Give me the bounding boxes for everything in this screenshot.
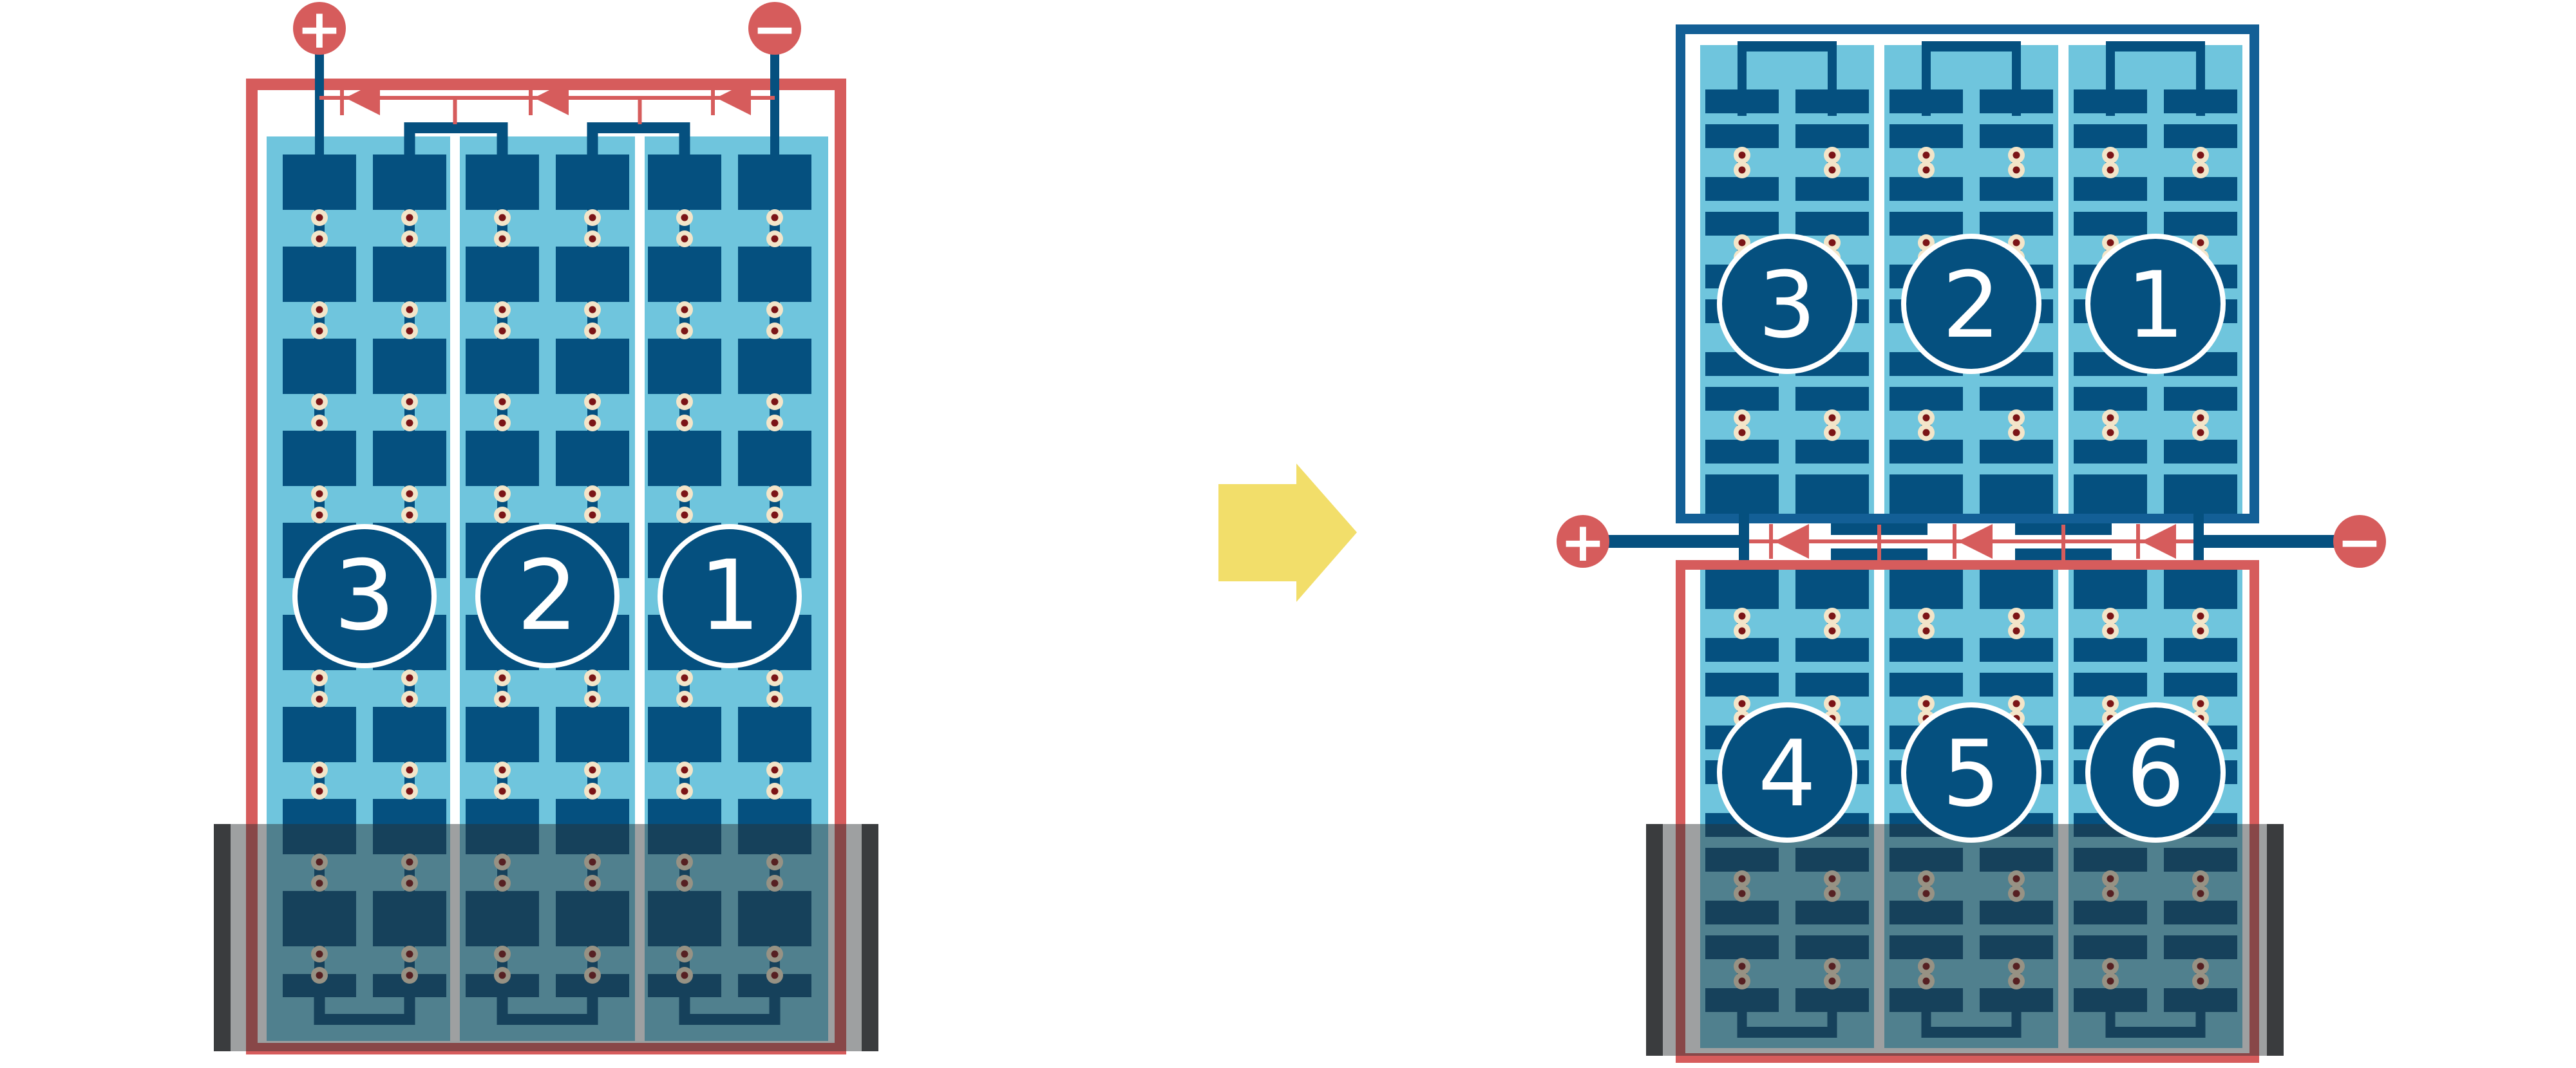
pv-cell: [2074, 440, 2147, 464]
badge-number: 1: [699, 540, 760, 652]
solder-dot-core: [1829, 628, 1836, 635]
solder-dot-core: [681, 788, 688, 795]
terminal-positive-label: +: [1560, 511, 1605, 574]
pv-cell: [1705, 673, 1779, 697]
section-number-badge: 5: [1904, 705, 2039, 840]
bridge-bar: [1922, 41, 2021, 52]
pv-cell: [466, 247, 539, 302]
pv-cell: [2164, 89, 2237, 113]
pv-cell: [1980, 212, 2053, 236]
solder-dot-core: [2013, 152, 2020, 159]
pv-cell: [2074, 474, 2147, 514]
solder-dot-core: [2107, 628, 2114, 635]
pv-cell: [1980, 387, 2053, 411]
solder-dot-core: [772, 767, 779, 774]
pv-cell: [373, 431, 446, 486]
pv-cell: [1795, 638, 1869, 662]
solder-dot-core: [589, 788, 596, 795]
solder-dot-core: [772, 696, 779, 703]
section-number-badge: 2: [478, 527, 617, 666]
solder-dot-core: [499, 214, 506, 221]
solar-module-shading-diagram: +−+−321321456: [0, 0, 2576, 1068]
solder-dot-core: [2013, 239, 2020, 247]
solder-dot-core: [499, 420, 506, 427]
pv-cell: [373, 247, 446, 302]
solder-dot-core: [1739, 700, 1746, 707]
pv-cell: [1889, 124, 1963, 148]
solder-dot-core: [2107, 700, 2114, 707]
solder-dot-core: [681, 236, 688, 243]
solder-dot-core: [1829, 613, 1836, 620]
solder-dot-core: [316, 675, 323, 682]
solder-dot-core: [1739, 239, 1746, 247]
bypass-diode-icon: [1769, 524, 1809, 559]
solder-dot-core: [772, 420, 779, 427]
terminal-wire: [770, 50, 779, 205]
solder-dot-core: [499, 328, 506, 335]
solder-dot-core: [2107, 415, 2114, 422]
solder-dot-core: [772, 398, 779, 406]
pv-cell: [1980, 638, 2053, 662]
pv-cell: [2164, 212, 2237, 236]
solder-dot-core: [2013, 700, 2020, 707]
badge-number: 3: [1758, 252, 1816, 359]
pv-cell: [2074, 638, 2147, 662]
solder-dot-core: [406, 512, 413, 519]
pv-cell: [283, 339, 356, 394]
solder-dot-core: [1923, 239, 1930, 247]
pv-cell: [1795, 89, 1869, 113]
solder-dot-core: [1923, 613, 1930, 620]
arrow-right-icon: [1218, 464, 1357, 602]
section-number-badge: 1: [660, 527, 799, 666]
solder-dot-core: [1739, 429, 1746, 436]
bus-junction: [638, 98, 642, 124]
pv-cell: [1980, 89, 2053, 113]
terminal-negative: −: [2333, 511, 2386, 574]
solder-dot-core: [772, 491, 779, 498]
solder-dot-core: [2197, 429, 2204, 436]
solder-dot-core: [681, 328, 688, 335]
pv-cell: [466, 707, 539, 762]
solder-dot-core: [2013, 415, 2020, 422]
solder-dot-core: [316, 696, 323, 703]
solder-dot-core: [499, 675, 506, 682]
solder-dot-core: [589, 236, 596, 243]
solder-dot-core: [2107, 152, 2114, 159]
solder-dot-core: [316, 236, 323, 243]
solder-dot-core: [316, 420, 323, 427]
pv-cell: [1795, 124, 1869, 148]
solder-dot-core: [681, 491, 688, 498]
solder-dot-core: [499, 696, 506, 703]
solder-dot-core: [2107, 239, 2114, 247]
pv-cell: [283, 707, 356, 762]
terminal-positive-label: +: [297, 0, 342, 61]
solder-dot-core: [1923, 415, 1930, 422]
pv-cell: [1795, 387, 1869, 411]
badge-number: 5: [1942, 721, 2000, 827]
solder-dot-core: [772, 328, 779, 335]
pv-cell: [1795, 673, 1869, 697]
pv-cell: [2074, 387, 2147, 411]
bus-junction: [1877, 525, 1881, 561]
solder-dot-core: [1923, 700, 1930, 707]
pv-cell: [466, 155, 539, 210]
solder-dot-core: [316, 328, 323, 335]
pv-cell: [738, 247, 811, 302]
pv-cell: [1889, 474, 1963, 514]
solder-dot-core: [589, 306, 596, 314]
section-divider: [1874, 45, 1884, 514]
solder-dot-core: [2197, 415, 2204, 422]
bypass-diode-icon: [2136, 524, 2176, 559]
shade-bar: [2267, 824, 2284, 1056]
solder-dot-core: [1739, 613, 1746, 620]
solder-dot-core: [681, 696, 688, 703]
solder-dot-core: [406, 214, 413, 221]
solder-dot-core: [589, 491, 596, 498]
pv-cell: [1889, 89, 1963, 113]
pv-cell: [1795, 440, 1869, 464]
bridge-bar: [2106, 41, 2205, 52]
solder-dot-core: [1739, 628, 1746, 635]
solder-dot-core: [1829, 415, 1836, 422]
bridge-bar: [1738, 41, 1837, 52]
pv-cell: [466, 431, 539, 486]
solder-dot-core: [316, 306, 323, 314]
pv-cell: [2074, 89, 2147, 113]
terminal-positive: +: [1557, 511, 1609, 574]
pv-cell: [2074, 212, 2147, 236]
solder-dot-core: [2197, 152, 2204, 159]
solder-dot-core: [589, 675, 596, 682]
terminal-wire: [315, 50, 324, 205]
pv-cell: [2164, 673, 2237, 697]
solder-dot-core: [2013, 628, 2020, 635]
pv-cell: [2164, 474, 2237, 514]
solder-dot-core: [406, 788, 413, 795]
diode-arrow: [1958, 524, 1993, 559]
solder-dot-core: [681, 767, 688, 774]
solder-dot-core: [499, 236, 506, 243]
bus-junction: [2061, 525, 2065, 561]
pv-cell: [1795, 212, 1869, 236]
solder-dot-core: [1829, 152, 1836, 159]
solder-dot-core: [1829, 239, 1836, 247]
solder-dot-core: [406, 398, 413, 406]
pv-cell: [283, 247, 356, 302]
badge-number: 3: [334, 540, 395, 652]
shading-overlays: [214, 824, 2284, 1056]
pv-cell: [1705, 124, 1779, 148]
section-divider: [2058, 45, 2069, 514]
pv-cell: [2164, 177, 2237, 201]
pv-cell: [1889, 212, 1963, 236]
section-number-badge: 6: [2088, 705, 2223, 840]
solder-dot-core: [1829, 429, 1836, 436]
pv-cell: [2074, 673, 2147, 697]
solder-dot-core: [316, 491, 323, 498]
solder-dot-core: [1923, 429, 1930, 436]
shade-bar: [1646, 824, 1663, 1056]
solder-dot-core: [499, 306, 506, 314]
pv-cell: [1705, 570, 1779, 609]
terminal-positive: +: [293, 0, 346, 61]
solder-dot-core: [589, 214, 596, 221]
badge-number: 2: [516, 540, 578, 652]
diode-arrow: [1774, 524, 1809, 559]
pv-cell: [1980, 124, 2053, 148]
section-number-badge: 2: [1904, 236, 2039, 371]
pv-cell: [556, 431, 629, 486]
solder-dot-core: [406, 306, 413, 314]
pv-cell: [466, 339, 539, 394]
pv-cell: [373, 707, 446, 762]
pv-cell: [648, 431, 721, 486]
solder-dot-core: [1829, 167, 1836, 174]
terminal-negative-label: −: [752, 0, 797, 61]
pv-cell: [2164, 638, 2237, 662]
pv-cell: [1889, 440, 1963, 464]
solder-dot-core: [681, 306, 688, 314]
solder-dot-core: [772, 788, 779, 795]
solder-dot-core: [2107, 613, 2114, 620]
solder-dot-core: [316, 398, 323, 406]
pv-cell: [1889, 570, 1963, 609]
solder-dot-core: [2197, 613, 2204, 620]
pv-cell: [2074, 570, 2147, 609]
solder-dot-core: [499, 491, 506, 498]
section-number-badge: 4: [1719, 705, 1855, 840]
solder-dot-core: [316, 788, 323, 795]
solder-dot-core: [406, 420, 413, 427]
pv-cell: [2074, 177, 2147, 201]
pv-cell: [1980, 673, 2053, 697]
pv-cell: [648, 339, 721, 394]
pv-cell: [1889, 177, 1963, 201]
solder-dot-core: [406, 328, 413, 335]
bypass-diode-icon: [1953, 524, 1993, 559]
solder-dot-core: [772, 236, 779, 243]
solder-dot-core: [1923, 628, 1930, 635]
badge-number: 1: [2126, 252, 2184, 359]
solder-dot-core: [316, 214, 323, 221]
solder-dot-core: [406, 236, 413, 243]
solder-dot-core: [589, 420, 596, 427]
pv-cell: [556, 707, 629, 762]
pv-cell: [1980, 440, 2053, 464]
pv-cell: [283, 431, 356, 486]
pv-cell: [648, 247, 721, 302]
terminal-wire: [2193, 535, 2357, 548]
pv-cell: [1795, 474, 1869, 514]
pv-cell: [2164, 440, 2237, 464]
terminal-negative-label: −: [2337, 511, 2382, 574]
solder-dot-core: [406, 767, 413, 774]
pv-cell: [1705, 440, 1779, 464]
pv-cell: [738, 707, 811, 762]
pv-cell: [1889, 387, 1963, 411]
solder-dot-core: [589, 696, 596, 703]
diode-cathode-bar: [529, 80, 533, 115]
pv-cell: [648, 707, 721, 762]
pv-cell: [2164, 570, 2237, 609]
badge-number: 6: [2126, 721, 2184, 827]
shading-overlay: [214, 824, 878, 1051]
pv-cell: [556, 339, 629, 394]
solder-dot-core: [1739, 152, 1746, 159]
section-number-badge: 1: [2088, 236, 2223, 371]
pv-cell: [1705, 177, 1779, 201]
solder-dot-core: [2013, 167, 2020, 174]
solder-dot-core: [1923, 167, 1930, 174]
pv-cell: [738, 339, 811, 394]
terminal-wire: [1586, 535, 1749, 548]
pv-cell: [1795, 570, 1869, 609]
solder-dot-core: [499, 767, 506, 774]
pv-cell: [556, 247, 629, 302]
solder-dot-core: [772, 306, 779, 314]
pv-cell: [738, 431, 811, 486]
solder-dot-core: [2013, 429, 2020, 436]
badge-number: 4: [1758, 721, 1816, 827]
bus-junction: [453, 98, 457, 124]
solder-dot-core: [681, 512, 688, 519]
solder-dot-core: [681, 214, 688, 221]
diode-cathode-bar: [1769, 524, 1773, 559]
solder-dot-core: [2197, 628, 2204, 635]
diagram-canvas: +−+−321321456: [0, 0, 2576, 1068]
solder-dot-core: [2197, 239, 2204, 247]
solder-dot-core: [499, 788, 506, 795]
pv-cell: [1705, 212, 1779, 236]
pv-cell: [2164, 387, 2237, 411]
solder-dot-core: [2197, 700, 2204, 707]
diode-cathode-bar: [1953, 524, 1956, 559]
solder-dot-core: [499, 512, 506, 519]
diode-cathode-bar: [711, 80, 715, 115]
solder-dot-core: [2197, 167, 2204, 174]
pv-cell: [1705, 474, 1779, 514]
solder-dot-core: [681, 675, 688, 682]
solder-dot-core: [772, 675, 779, 682]
pv-cell: [1889, 673, 1963, 697]
pv-cell: [2164, 124, 2237, 148]
shading-overlay: [1646, 824, 2284, 1056]
solder-dot-core: [772, 214, 779, 221]
diode-arrow: [2141, 524, 2176, 559]
pv-cell: [1889, 638, 1963, 662]
solder-dot-core: [681, 398, 688, 406]
pv-cell: [1705, 387, 1779, 411]
diode-cathode-bar: [340, 80, 344, 115]
pv-cell: [1795, 177, 1869, 201]
solder-dot-core: [1923, 152, 1930, 159]
solder-dot-core: [2107, 429, 2114, 436]
solder-dot-core: [772, 512, 779, 519]
solder-dot-core: [589, 328, 596, 335]
solder-dot-core: [316, 512, 323, 519]
section-number-badge: 3: [295, 527, 434, 666]
pv-cell: [1705, 638, 1779, 662]
solder-dot-core: [316, 767, 323, 774]
solder-dot-core: [1739, 167, 1746, 174]
solder-dot-core: [681, 420, 688, 427]
solder-dot-core: [589, 512, 596, 519]
solder-dot-core: [589, 398, 596, 406]
solder-dot-core: [499, 398, 506, 406]
badge-number: 2: [1942, 252, 2000, 359]
pv-cell: [2074, 124, 2147, 148]
pv-cell: [1980, 570, 2053, 609]
terminal-negative: −: [748, 0, 801, 61]
pv-cell: [1705, 89, 1779, 113]
pv-cell: [1980, 177, 2053, 201]
pv-cell: [373, 339, 446, 394]
solder-dot-core: [406, 696, 413, 703]
pv-cell: [648, 155, 721, 210]
shade-bar: [862, 824, 878, 1051]
section-number-badge: 3: [1719, 236, 1855, 371]
solder-dot-core: [406, 491, 413, 498]
pv-cell: [556, 155, 629, 210]
solder-dot-core: [1829, 700, 1836, 707]
shade-bar: [214, 824, 231, 1051]
pv-cell: [1980, 474, 2053, 514]
pv-cell: [373, 155, 446, 210]
solder-dot-core: [406, 675, 413, 682]
solder-dot-core: [2107, 167, 2114, 174]
diode-cathode-bar: [2136, 524, 2140, 559]
solder-dot-core: [589, 767, 596, 774]
solder-dot-core: [1739, 415, 1746, 422]
solder-dot-core: [2013, 613, 2020, 620]
